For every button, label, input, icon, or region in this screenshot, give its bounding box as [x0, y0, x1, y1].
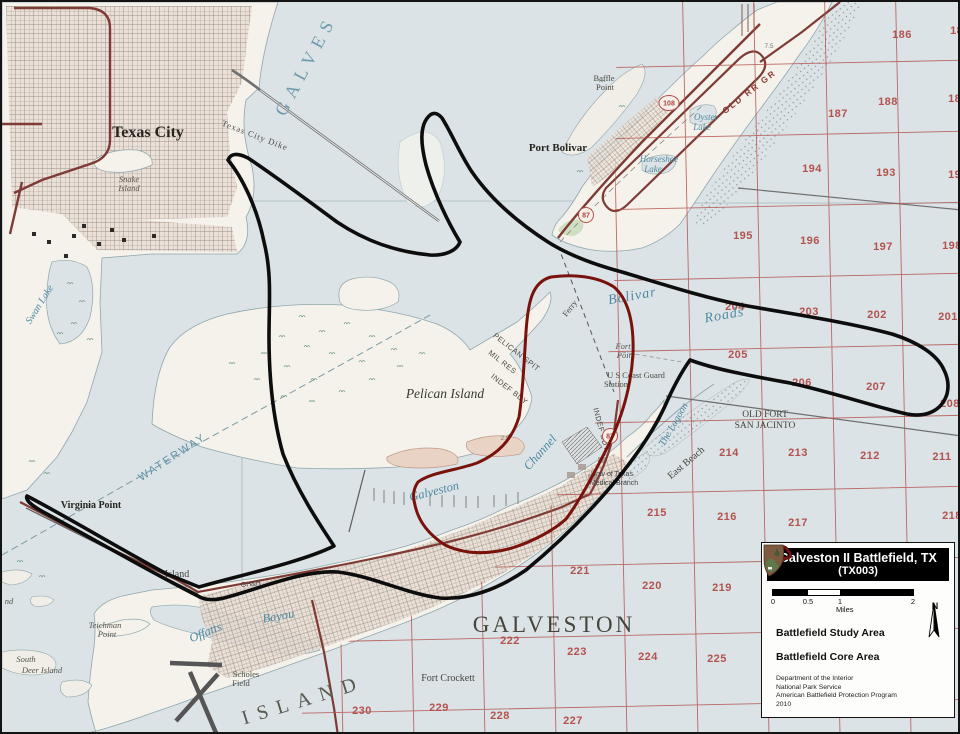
north-arrow-icon [926, 601, 942, 641]
nd: nd [5, 596, 14, 606]
grid-number-198: 198 [942, 240, 960, 252]
grid-number-230: 230 [352, 705, 372, 717]
grid-number-224: 224 [638, 651, 658, 663]
scale-bar-ticks: 0 0.5 1 2 [772, 596, 914, 605]
grid-number-193: 193 [876, 167, 896, 179]
grid-number-229: 229 [429, 702, 449, 714]
grid-number-217: 217 [788, 517, 808, 529]
grid-number-201: 201 [938, 311, 958, 323]
grid-number-196: 196 [800, 235, 820, 247]
grid-number-186: 186 [892, 29, 912, 41]
grid-number-213: 213 [788, 447, 808, 459]
grid-number-185: 185 [950, 25, 960, 37]
grid-number-197: 197 [873, 241, 893, 253]
south-deer-1: South [16, 654, 35, 664]
scholes-2: Field [232, 678, 250, 688]
route-shield-number-87: 87 [582, 213, 590, 220]
route-shield-87: 87 [579, 208, 594, 223]
scale-unit-label: Miles [836, 605, 854, 614]
legend-items: Battlefield Study Area Battlefield Core … [770, 621, 946, 669]
grid-number-205: 205 [728, 349, 748, 361]
scale-tick-0: 0 [771, 597, 775, 606]
grid-number-216: 216 [717, 511, 737, 523]
scale-bar-graphic [772, 589, 914, 596]
grid-number-220: 220 [642, 580, 662, 592]
old-fort-1: OLD FORT [742, 410, 788, 420]
nps-arrowhead-logo-icon [762, 543, 786, 577]
grid-number-218: 218 [942, 510, 960, 522]
port-bolivar: Port Bolivar [529, 142, 587, 154]
snake-island-2: Island [117, 183, 140, 193]
texas-city: Texas City [112, 124, 184, 141]
grid-number-187: 187 [828, 108, 848, 120]
legend-title: Galveston II Battlefield, TX (TX003) [767, 548, 949, 581]
map-frame: 1861851871881891941931921951961971982042… [0, 0, 960, 734]
south-deer-2: Deer Island [21, 665, 63, 675]
scale-bar: 0 0.5 1 2 Miles [772, 589, 942, 615]
grid-number-195: 195 [733, 230, 753, 242]
grid-number-194: 194 [802, 163, 822, 175]
legend-title-line1: Galveston II Battlefield, TX [767, 551, 949, 565]
grid-number-202: 202 [867, 309, 887, 321]
horseshoe-lake-2: Lake [643, 164, 662, 174]
grid-number-214: 214 [719, 447, 739, 459]
marsh-blob-northwest [339, 277, 399, 310]
galveston-city: GALVESTON [473, 612, 635, 637]
uscg-2: Station [604, 379, 629, 389]
grid-number-211: 211 [932, 451, 951, 463]
grid-number-207: 207 [866, 381, 886, 393]
credits-text: Department of the Interior National Park… [776, 675, 897, 709]
utmb-1: Univ of Texas [591, 471, 633, 478]
grid-number-212: 212 [860, 450, 880, 462]
old-fort-2: SAN JACINTO [735, 421, 796, 431]
grid-number-219: 219 [712, 582, 732, 594]
legend-core-area-label: Battlefield Core Area [776, 651, 879, 663]
scale-tick-05: 0.5 [803, 597, 813, 606]
baffle-point-2: Point [596, 82, 615, 92]
legend-item-core-area: Battlefield Core Area [770, 645, 946, 669]
grid-number-221: 221 [570, 565, 590, 577]
route-shield-108: 108 [659, 96, 679, 111]
horseshoe-lake-1: Horseshoe [639, 154, 679, 164]
teichman-2: Point [97, 629, 117, 639]
grid-number-228: 228 [490, 710, 510, 722]
marker-75: 7.5 [764, 43, 773, 50]
legend-item-study-area: Battlefield Study Area [770, 621, 946, 645]
grid-number-227: 227 [563, 715, 583, 727]
grid-number-188: 188 [878, 96, 898, 108]
legend-box: Galveston II Battlefield, TX (TX003) 0 0… [761, 542, 955, 718]
oyster-lake-1: Oyster [694, 112, 718, 122]
north-arrow: N [926, 601, 944, 611]
grid-number-215: 215 [647, 507, 667, 519]
oyster-lake-2: Lake [692, 122, 711, 132]
legend-study-area-label: Battlefield Study Area [776, 627, 885, 639]
legend-credits: Department of the Interior National Park… [770, 675, 948, 709]
grid-number-189: 189 [948, 93, 960, 105]
scale-tick-2: 2 [911, 597, 915, 606]
grid-number-225: 225 [707, 653, 727, 665]
virginia-point: Virginia Point [61, 500, 122, 511]
route-shield-number-108: 108 [663, 101, 675, 108]
fort-crockett: Fort Crockett [421, 673, 475, 684]
grid-number-223: 223 [567, 646, 587, 658]
grid-number-192: 192 [948, 169, 960, 181]
legend-title-line2: (TX003) [767, 565, 949, 577]
pelican-island: Pelican Island [405, 386, 485, 401]
